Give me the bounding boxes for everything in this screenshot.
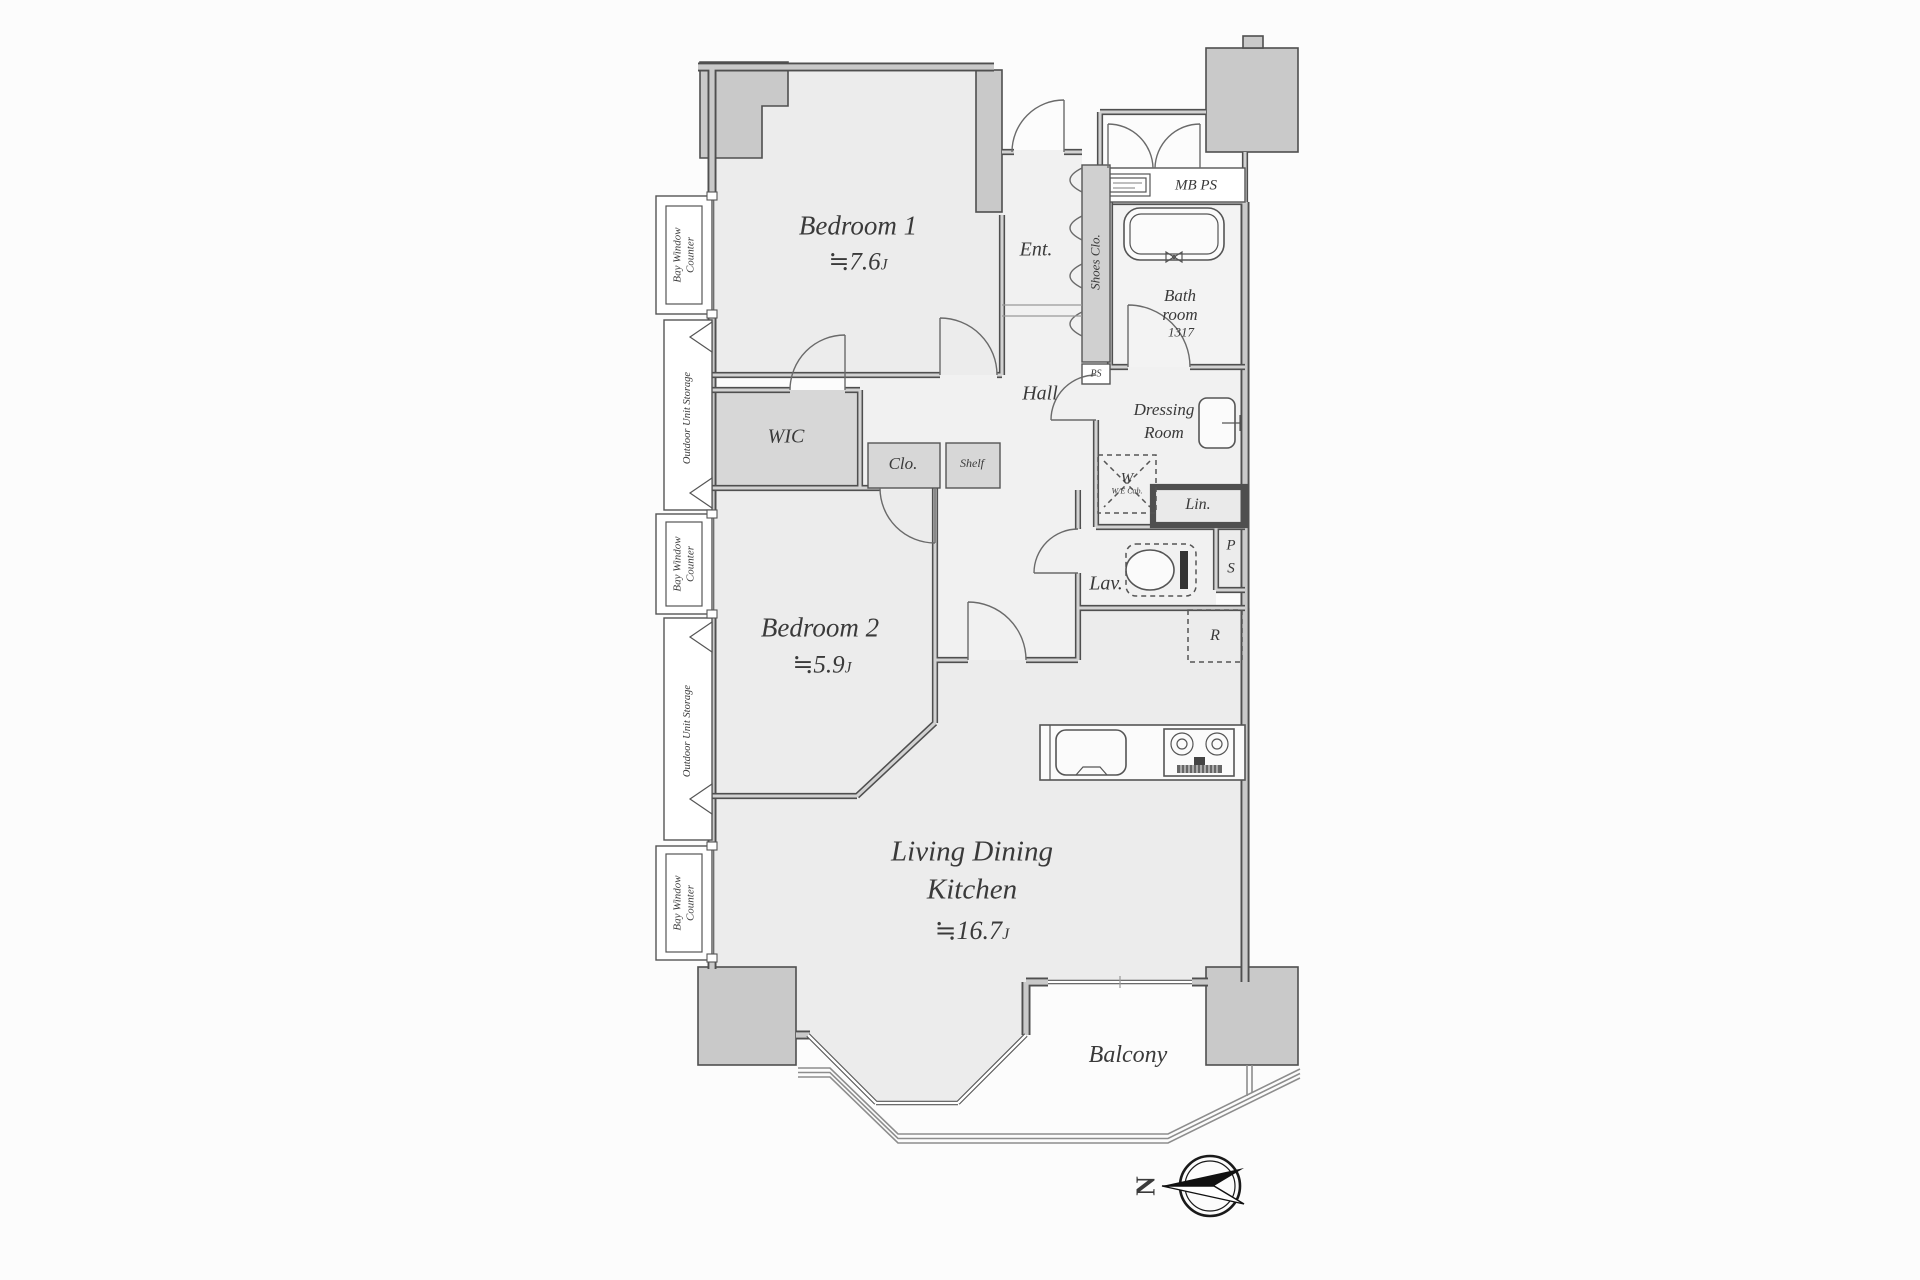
corner-block-northeast-tab (1243, 36, 1263, 48)
pipe-shaft-s: S (1227, 560, 1235, 577)
utility-double-door (1108, 124, 1200, 168)
outdoor-storage-label-1: Outdoor Unit Storage (682, 372, 694, 464)
bedroom2-area: ≒5.9J (792, 652, 851, 681)
balcony-label: Balcony (1089, 1042, 1168, 1070)
hall-label: Hall (1022, 383, 1058, 406)
bedroom1-label: Bedroom 1 (799, 210, 917, 241)
bay-window-label-3: Bay Window Counter (671, 875, 696, 930)
outdoor-storage-label-2: Outdoor Unit Storage (682, 685, 694, 777)
fridge-label: R (1210, 627, 1220, 645)
floor-plan: Bedroom 1 ≒7.6J Bedroom 2 ≒5.9J Living D… (0, 0, 1920, 1280)
shoes-closet-label: Shoes Clo. (1089, 234, 1104, 290)
corner-block-southeast (1206, 967, 1298, 1065)
wic-label: WIC (768, 426, 805, 449)
floor-plan-drawing (0, 0, 1920, 1280)
bathroom-label-line2: room (1162, 305, 1197, 325)
bay-window-label-1: Bay Window Counter (671, 227, 696, 282)
corner-block-southwest (698, 967, 796, 1065)
dressing-label-line2: Room (1144, 423, 1184, 443)
toilet-tank (1180, 551, 1188, 589)
corner-block-northeast (1206, 48, 1298, 152)
ldk-area: ≒16.7J (935, 916, 1009, 946)
closet-label: Clo. (889, 454, 918, 474)
meter-box-band (1100, 168, 1245, 202)
bedroom2-label: Bedroom 2 (761, 612, 879, 643)
dressing-label-line1: Dressing (1134, 400, 1195, 420)
ldk-label-line1: Living Dining (891, 835, 1053, 868)
washer-label: WW/E Cab. (1111, 470, 1142, 495)
bathroom-label-line1: Bath (1164, 286, 1196, 306)
toilet-icon (1126, 550, 1174, 590)
shelf-label: Shelf (960, 457, 984, 471)
compass-icon (1162, 1156, 1244, 1216)
ldk-label-line2: Kitchen (927, 873, 1017, 906)
lavatory-label: Lav. (1089, 573, 1123, 596)
pipe-space-label: PS (1090, 368, 1101, 380)
bathtub-icon (1124, 208, 1224, 260)
bathroom-size: 1317 (1168, 326, 1194, 341)
entry-door-arc (1012, 100, 1064, 152)
bedroom1-area: ≒7.6J (828, 249, 887, 278)
bay-window-label-2: Bay Window Counter (671, 536, 696, 591)
wall-pier-entry (976, 70, 1002, 212)
entry-label: Ent. (1020, 239, 1053, 262)
linen-label: Lin. (1185, 496, 1210, 514)
meter-box-label: MB PS (1175, 177, 1217, 194)
pipe-shaft-p: P (1226, 537, 1235, 554)
kitchen-sink-icon (1056, 730, 1126, 775)
compass-north-label: N (1130, 1176, 1161, 1196)
